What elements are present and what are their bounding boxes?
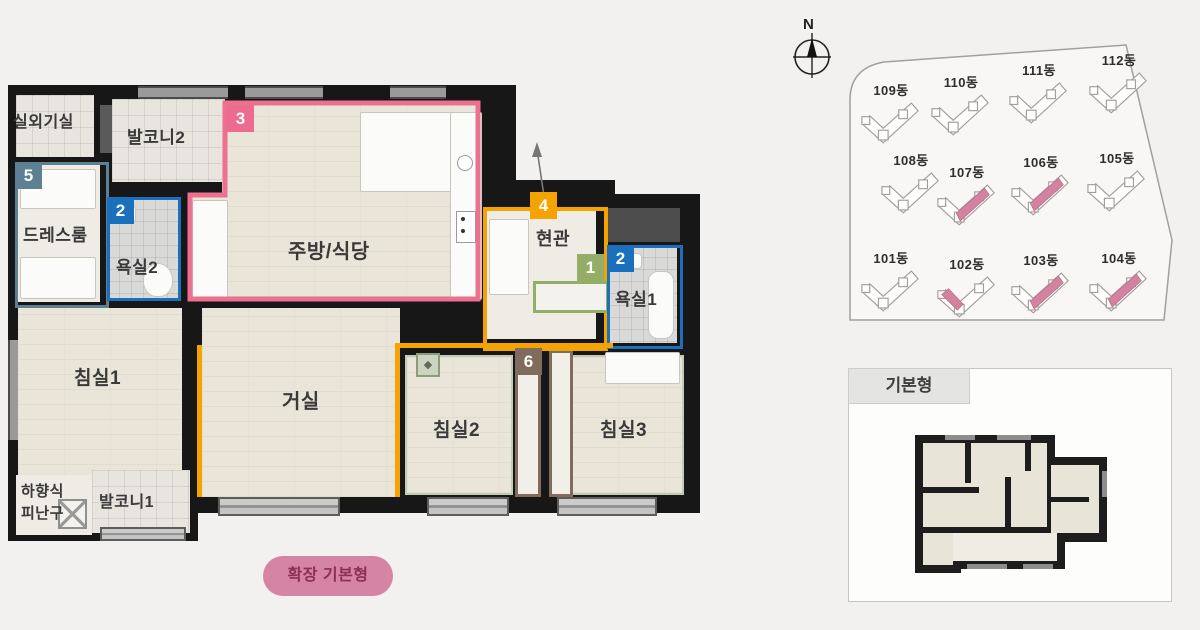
building-101[interactable]: 101동: [852, 248, 930, 318]
building-111[interactable]: 111동: [1000, 60, 1078, 130]
building-label: 112동: [1080, 50, 1158, 69]
room-label-outdoor-unit: 실외기실: [13, 108, 74, 132]
entry-arrow-head: [532, 142, 542, 157]
building-label: 107동: [928, 162, 1006, 181]
building-highlight: [1030, 276, 1063, 309]
expanded-basic-type-button[interactable]: 확장 기본형: [263, 556, 393, 596]
window: [557, 497, 657, 516]
building-footprint: [1008, 80, 1070, 125]
building-footprint: [860, 100, 922, 145]
building-label: 109동: [852, 80, 930, 99]
floor-plan: ◆ 5 2 3 4 1 2 6 실외기실 발코니2 드레스룸 욕실2: [8, 85, 700, 542]
building-footprint: [860, 268, 922, 313]
building-footprint: [1086, 168, 1148, 213]
building-highlight: [1108, 274, 1141, 307]
window: [100, 527, 186, 541]
room-label-bath2: 욕실2: [116, 253, 158, 278]
stove: [456, 211, 476, 243]
expansion-line: [395, 343, 613, 348]
building-102[interactable]: 102동: [928, 254, 1006, 324]
building-110[interactable]: 110동: [922, 72, 1000, 142]
building-footprint: [1010, 270, 1072, 315]
expansion-line: [395, 343, 400, 497]
marker-2-badge-bath1: 2: [607, 245, 634, 272]
room-label-kitchen: 주방/식당: [288, 235, 370, 264]
system-aircon-icon: ◆: [416, 353, 440, 377]
room-label-escape-line2: 피난구: [21, 502, 64, 523]
building-footprint: [930, 92, 992, 137]
building-footprint: [1010, 172, 1072, 217]
window: [390, 86, 446, 99]
room-label-dressroom: 드레스룸: [23, 221, 88, 246]
page: ◆ 5 2 3 4 1 2 6 실외기실 발코니2 드레스룸 욕실2: [0, 0, 1200, 630]
building-label: 102동: [928, 254, 1006, 273]
room-label-bedroom3: 침실3: [600, 415, 647, 442]
building-footprint: [1088, 70, 1150, 115]
basic-type-thumbnail-plan: [905, 427, 1115, 577]
duct-shaft: [608, 208, 680, 242]
marker-6-badge: 6: [515, 348, 542, 375]
marker-1-outline: [533, 281, 609, 313]
expansion-line: [197, 345, 202, 497]
window: [138, 86, 228, 99]
building-footprint: [936, 274, 998, 319]
building-label: 111동: [1000, 60, 1078, 79]
building-109[interactable]: 109동: [852, 80, 930, 150]
building-label: 106동: [1002, 152, 1080, 171]
building-103[interactable]: 103동: [1002, 250, 1080, 320]
marker-2-badge-bath2: 2: [107, 197, 134, 224]
building-highlight: [956, 188, 989, 221]
building-106[interactable]: 106동: [1002, 152, 1080, 222]
building-label: 101동: [852, 248, 930, 267]
marker-4-badge: 4: [530, 192, 557, 219]
building-label: 110동: [922, 72, 1000, 91]
building-label: 104동: [1080, 248, 1158, 267]
marker-3-badge: 3: [227, 105, 254, 132]
building-label: 103동: [1002, 250, 1080, 269]
room-label-entrance: 현관: [536, 225, 570, 251]
room-label-living: 거실: [282, 385, 320, 414]
wardrobe: [605, 352, 680, 384]
room-label-bedroom1: 침실1: [74, 363, 121, 390]
room-label-bath1: 욕실1: [615, 285, 657, 310]
building-107[interactable]: 107동: [928, 162, 1006, 232]
room-label-balcony2: 발코니2: [127, 123, 185, 148]
building-104[interactable]: 104동: [1080, 248, 1158, 318]
marker-1-badge: 1: [577, 254, 604, 281]
compass-icon: [789, 30, 835, 80]
building-highlight: [1030, 178, 1063, 211]
kitchen-sink: [457, 155, 473, 171]
room-label-balcony1: 발코니1: [99, 488, 154, 512]
basic-type-tag: 기본형: [848, 368, 970, 404]
building-105[interactable]: 105동: [1078, 148, 1156, 218]
kitchen-counter: [450, 112, 482, 300]
basic-type-thumbnail: [905, 427, 1115, 582]
room-label-bedroom2: 침실2: [433, 415, 480, 442]
building-112[interactable]: 112동: [1080, 50, 1158, 120]
wall-notch: [615, 180, 700, 194]
building-footprint: [1088, 268, 1150, 313]
room-bedroom1: [18, 308, 182, 480]
window: [427, 497, 509, 516]
room-label-escape-line1: 하향식: [21, 480, 64, 501]
marker-6-outline: [549, 350, 573, 497]
building-label: 105동: [1078, 148, 1156, 167]
window: [218, 497, 340, 516]
marker-5-badge: 5: [15, 162, 42, 189]
window: [245, 86, 323, 99]
refrigerator-cabinet: [192, 200, 228, 298]
building-footprint: [936, 182, 998, 227]
kitchen-counter: [360, 112, 454, 192]
basic-type-card[interactable]: 기본형: [848, 368, 1172, 602]
